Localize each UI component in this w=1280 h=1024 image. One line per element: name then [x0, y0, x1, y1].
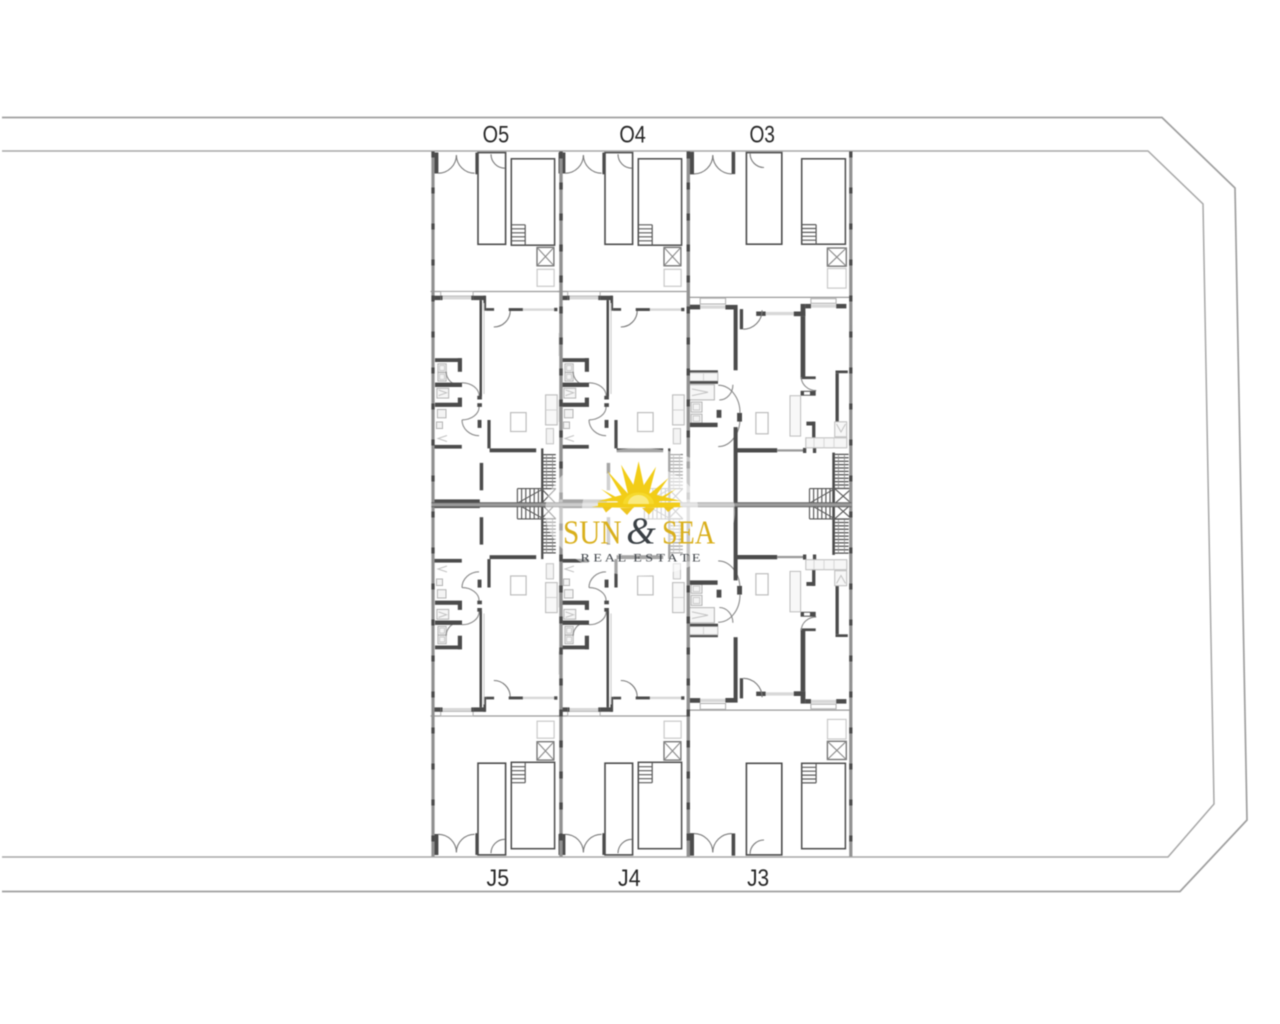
svg-text:&: & [626, 511, 656, 553]
svg-text:J3: J3 [747, 865, 769, 892]
svg-text:O3: O3 [749, 122, 775, 149]
svg-text:J4: J4 [618, 865, 641, 892]
svg-text:SUN: SUN [563, 515, 622, 552]
svg-text:J5: J5 [487, 865, 510, 892]
svg-text:O5: O5 [483, 122, 510, 149]
svg-text:SEA: SEA [662, 515, 715, 552]
svg-text:R E A L E S T A T E: R E A L E S T A T E [581, 551, 701, 565]
svg-text:O4: O4 [619, 122, 646, 149]
